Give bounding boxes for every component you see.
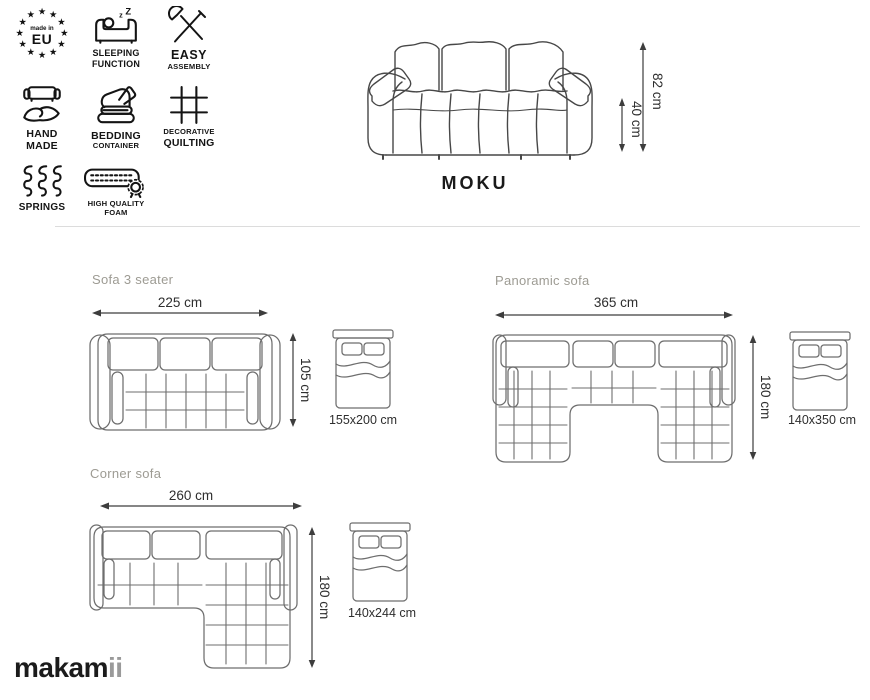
- depth-label: 180 cm: [317, 575, 332, 619]
- section-title: Panoramic sofa: [495, 273, 590, 288]
- bed-size-label: 140x350 cm: [772, 413, 870, 427]
- product-name: MOKU: [395, 173, 555, 194]
- svg-text:★: ★: [38, 6, 46, 17]
- svg-text:★: ★: [16, 28, 24, 39]
- feature-label: EASY: [171, 48, 207, 63]
- feature-label: HAND: [26, 128, 57, 140]
- feature-label: CONTAINER: [93, 142, 139, 151]
- bed-icon: [350, 523, 410, 601]
- decorative-quilting-icon: [169, 82, 209, 128]
- svg-text:★: ★: [18, 17, 26, 28]
- svg-text:★: ★: [49, 9, 57, 20]
- brand-logo-light: ii: [108, 652, 123, 683]
- svg-text:★: ★: [18, 39, 26, 50]
- svg-text:z: z: [119, 11, 123, 20]
- svg-text:★: ★: [60, 28, 68, 39]
- svg-text:★: ★: [49, 47, 57, 58]
- feature-label: ASSEMBLY: [167, 63, 210, 72]
- width-arrow: [495, 312, 733, 319]
- top-view: [493, 335, 735, 462]
- top-view: [90, 525, 297, 668]
- feature-badges: ★★ ★★ ★★ ★★ ★★ ★★ made in EU z Z SLEEPIN…: [8, 4, 222, 224]
- svg-text:★: ★: [27, 47, 35, 58]
- made-in-eu-stars-icon: ★★ ★★ ★★ ★★ ★★ ★★ made in EU: [13, 4, 71, 62]
- panoramic-sofa-drawing: [490, 308, 870, 470]
- sleeping-function-icon: z Z: [92, 4, 140, 48]
- eu-label: EU: [32, 31, 52, 47]
- section-title: Corner sofa: [90, 466, 161, 481]
- depth-arrow: [290, 333, 297, 427]
- hand-made-icon: [18, 82, 66, 128]
- feature-springs: SPRINGS: [8, 162, 76, 224]
- feature-decorative-quilting: DECORATIVE QUILTING: [156, 82, 222, 162]
- brand-logo-dark: makam: [14, 652, 108, 683]
- feature-bedding-container: BEDDING CONTAINER: [78, 82, 154, 162]
- section-title: Sofa 3 seater: [92, 272, 173, 287]
- section-panoramic-sofa: Panoramic sofa 365 cm: [490, 268, 870, 473]
- top-view: [90, 334, 280, 430]
- feature-high-quality-foam: HIGH QUALITY FOAM: [78, 162, 154, 224]
- section-sofa-3-seater: Sofa 3 seater 225 cm: [85, 268, 430, 438]
- feature-label: MADE: [26, 140, 58, 152]
- product-spec-sheet: { "brand": {"name_dark": "makam", "name_…: [0, 0, 870, 700]
- feature-hand-made: HAND MADE: [8, 82, 76, 162]
- svg-text:★: ★: [27, 9, 35, 20]
- svg-text:★: ★: [57, 39, 65, 50]
- seat-height-arrow: [619, 98, 625, 152]
- easy-assembly-icon: [167, 4, 211, 48]
- high-quality-foam-icon: [84, 162, 148, 200]
- divider-line: [55, 226, 860, 227]
- total-height-label: 82 cm: [650, 73, 665, 110]
- depth-arrow: [750, 335, 757, 460]
- svg-text:Z: Z: [125, 6, 131, 17]
- springs-icon: [19, 162, 65, 202]
- feature-label: QUILTING: [164, 137, 215, 149]
- bedding-container-icon: [93, 82, 139, 130]
- bed-icon: [790, 332, 850, 410]
- width-arrow: [92, 310, 268, 317]
- svg-text:★: ★: [38, 50, 46, 61]
- brand-logo: makamii: [14, 652, 123, 684]
- front-sofa-drawing: [345, 28, 665, 162]
- depth-label: 105 cm: [298, 358, 313, 402]
- feature-made-in-eu: ★★ ★★ ★★ ★★ ★★ ★★ made in EU: [8, 4, 76, 82]
- corner-sofa-drawing: [85, 496, 430, 681]
- seat-height-label: 40 cm: [629, 101, 644, 138]
- feature-label: FOAM: [104, 209, 127, 218]
- depth-arrow: [309, 527, 316, 668]
- bed-size-label: 140x244 cm: [332, 606, 432, 620]
- feature-sleeping-function: z Z SLEEPING FUNCTION: [78, 4, 154, 82]
- bed-icon: [333, 330, 393, 408]
- feature-label: SLEEPING: [92, 48, 139, 59]
- feature-label: DECORATIVE: [163, 128, 214, 137]
- svg-text:★: ★: [57, 17, 65, 28]
- feature-easy-assembly: EASY ASSEMBLY: [156, 4, 222, 82]
- section-corner-sofa: Corner sofa 260 cm: [85, 460, 430, 688]
- depth-label: 180 cm: [758, 375, 773, 419]
- feature-label: SPRINGS: [19, 202, 65, 214]
- feature-label: FUNCTION: [92, 59, 140, 70]
- bed-size-label: 155x200 cm: [313, 413, 413, 427]
- width-arrow: [100, 503, 302, 510]
